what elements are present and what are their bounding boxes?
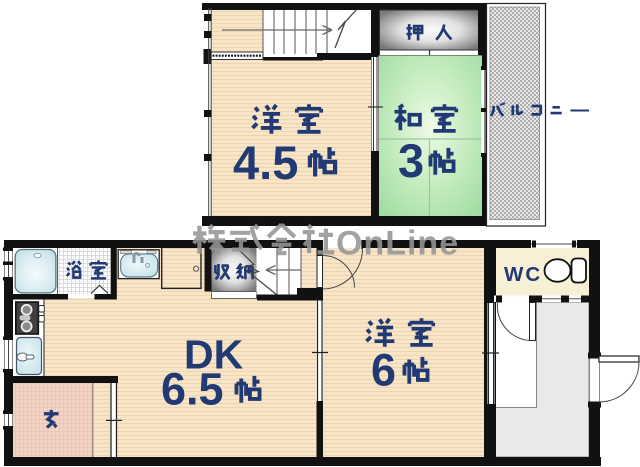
svg-text:3: 3 xyxy=(398,134,424,187)
svg-text:6.5: 6.5 xyxy=(161,364,224,415)
svg-text:OnLine: OnLine xyxy=(336,225,459,263)
svg-text:WC: WC xyxy=(504,263,542,286)
svg-text:6: 6 xyxy=(371,345,396,396)
svg-text:4.5: 4.5 xyxy=(233,136,298,189)
